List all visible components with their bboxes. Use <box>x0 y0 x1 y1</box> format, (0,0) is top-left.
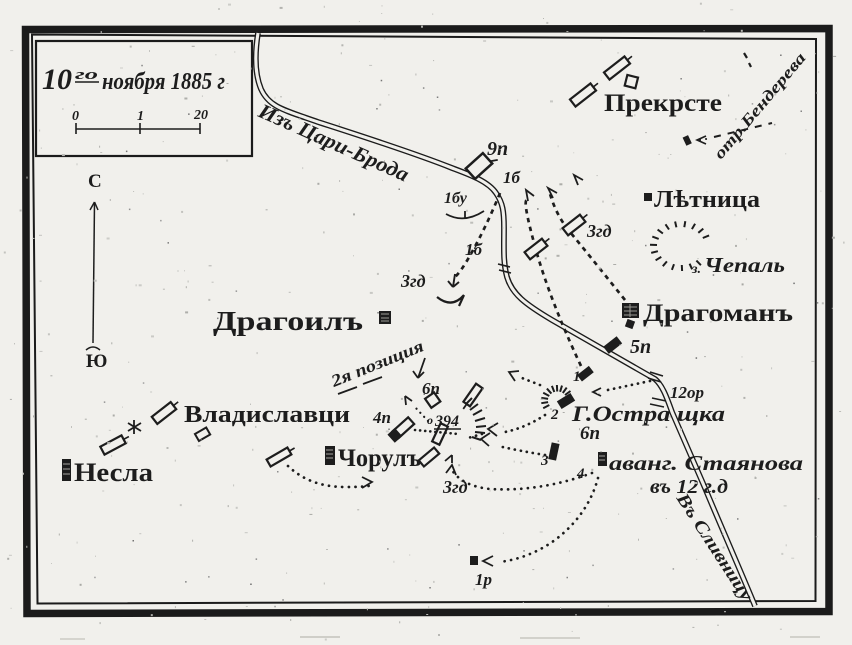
svg-text:20: 20 <box>193 108 208 123</box>
svg-text:Несла: Несла <box>74 458 153 487</box>
svg-text:5п: 5п <box>630 336 651 358</box>
svg-text:4: 4 <box>576 466 585 482</box>
svg-text:6п: 6п <box>580 423 600 444</box>
svg-text:го: го <box>75 67 98 83</box>
svg-text:1: 1 <box>573 369 581 385</box>
svg-text:Чорулъ: Чорулъ <box>338 445 421 472</box>
svg-text:1бу: 1бу <box>444 190 468 207</box>
svg-text:С: С <box>88 171 102 192</box>
svg-text:Владиславци: Владиславци <box>184 402 350 428</box>
svg-text:4п: 4п <box>372 408 391 427</box>
svg-text:Лѣтница: Лѣтница <box>654 187 760 213</box>
svg-text:Ю: Ю <box>86 351 107 372</box>
svg-text:аванг. Стаянова: аванг. Стаянова <box>609 451 803 475</box>
svg-text:Прекрсте: Прекрсте <box>604 90 722 117</box>
svg-text:ноября 1885 г: ноября 1885 г <box>102 69 225 95</box>
svg-text:о: о <box>427 413 433 427</box>
svg-text:394: 394 <box>434 413 459 430</box>
svg-text:0: 0 <box>72 109 79 124</box>
svg-text:3гд: 3гд <box>400 271 426 291</box>
svg-text:3гд: 3гд <box>442 477 468 497</box>
svg-text:1: 1 <box>137 109 144 124</box>
svg-text:Чепаль: Чепаль <box>704 253 785 277</box>
svg-text:3гд: 3гд <box>586 221 612 241</box>
svg-text:1р: 1р <box>475 570 492 589</box>
svg-text:Драгоманъ: Драгоманъ <box>643 300 793 327</box>
svg-text:10: 10 <box>42 63 72 96</box>
svg-text:з.: з. <box>691 262 701 277</box>
svg-text:въ 12 г.д: въ 12 г.д <box>650 476 728 498</box>
svg-text:12ор: 12ор <box>670 383 704 402</box>
svg-text:1б: 1б <box>503 168 522 187</box>
svg-text:9п: 9п <box>487 138 508 160</box>
svg-text:Драгоилъ: Драгоилъ <box>213 306 363 336</box>
